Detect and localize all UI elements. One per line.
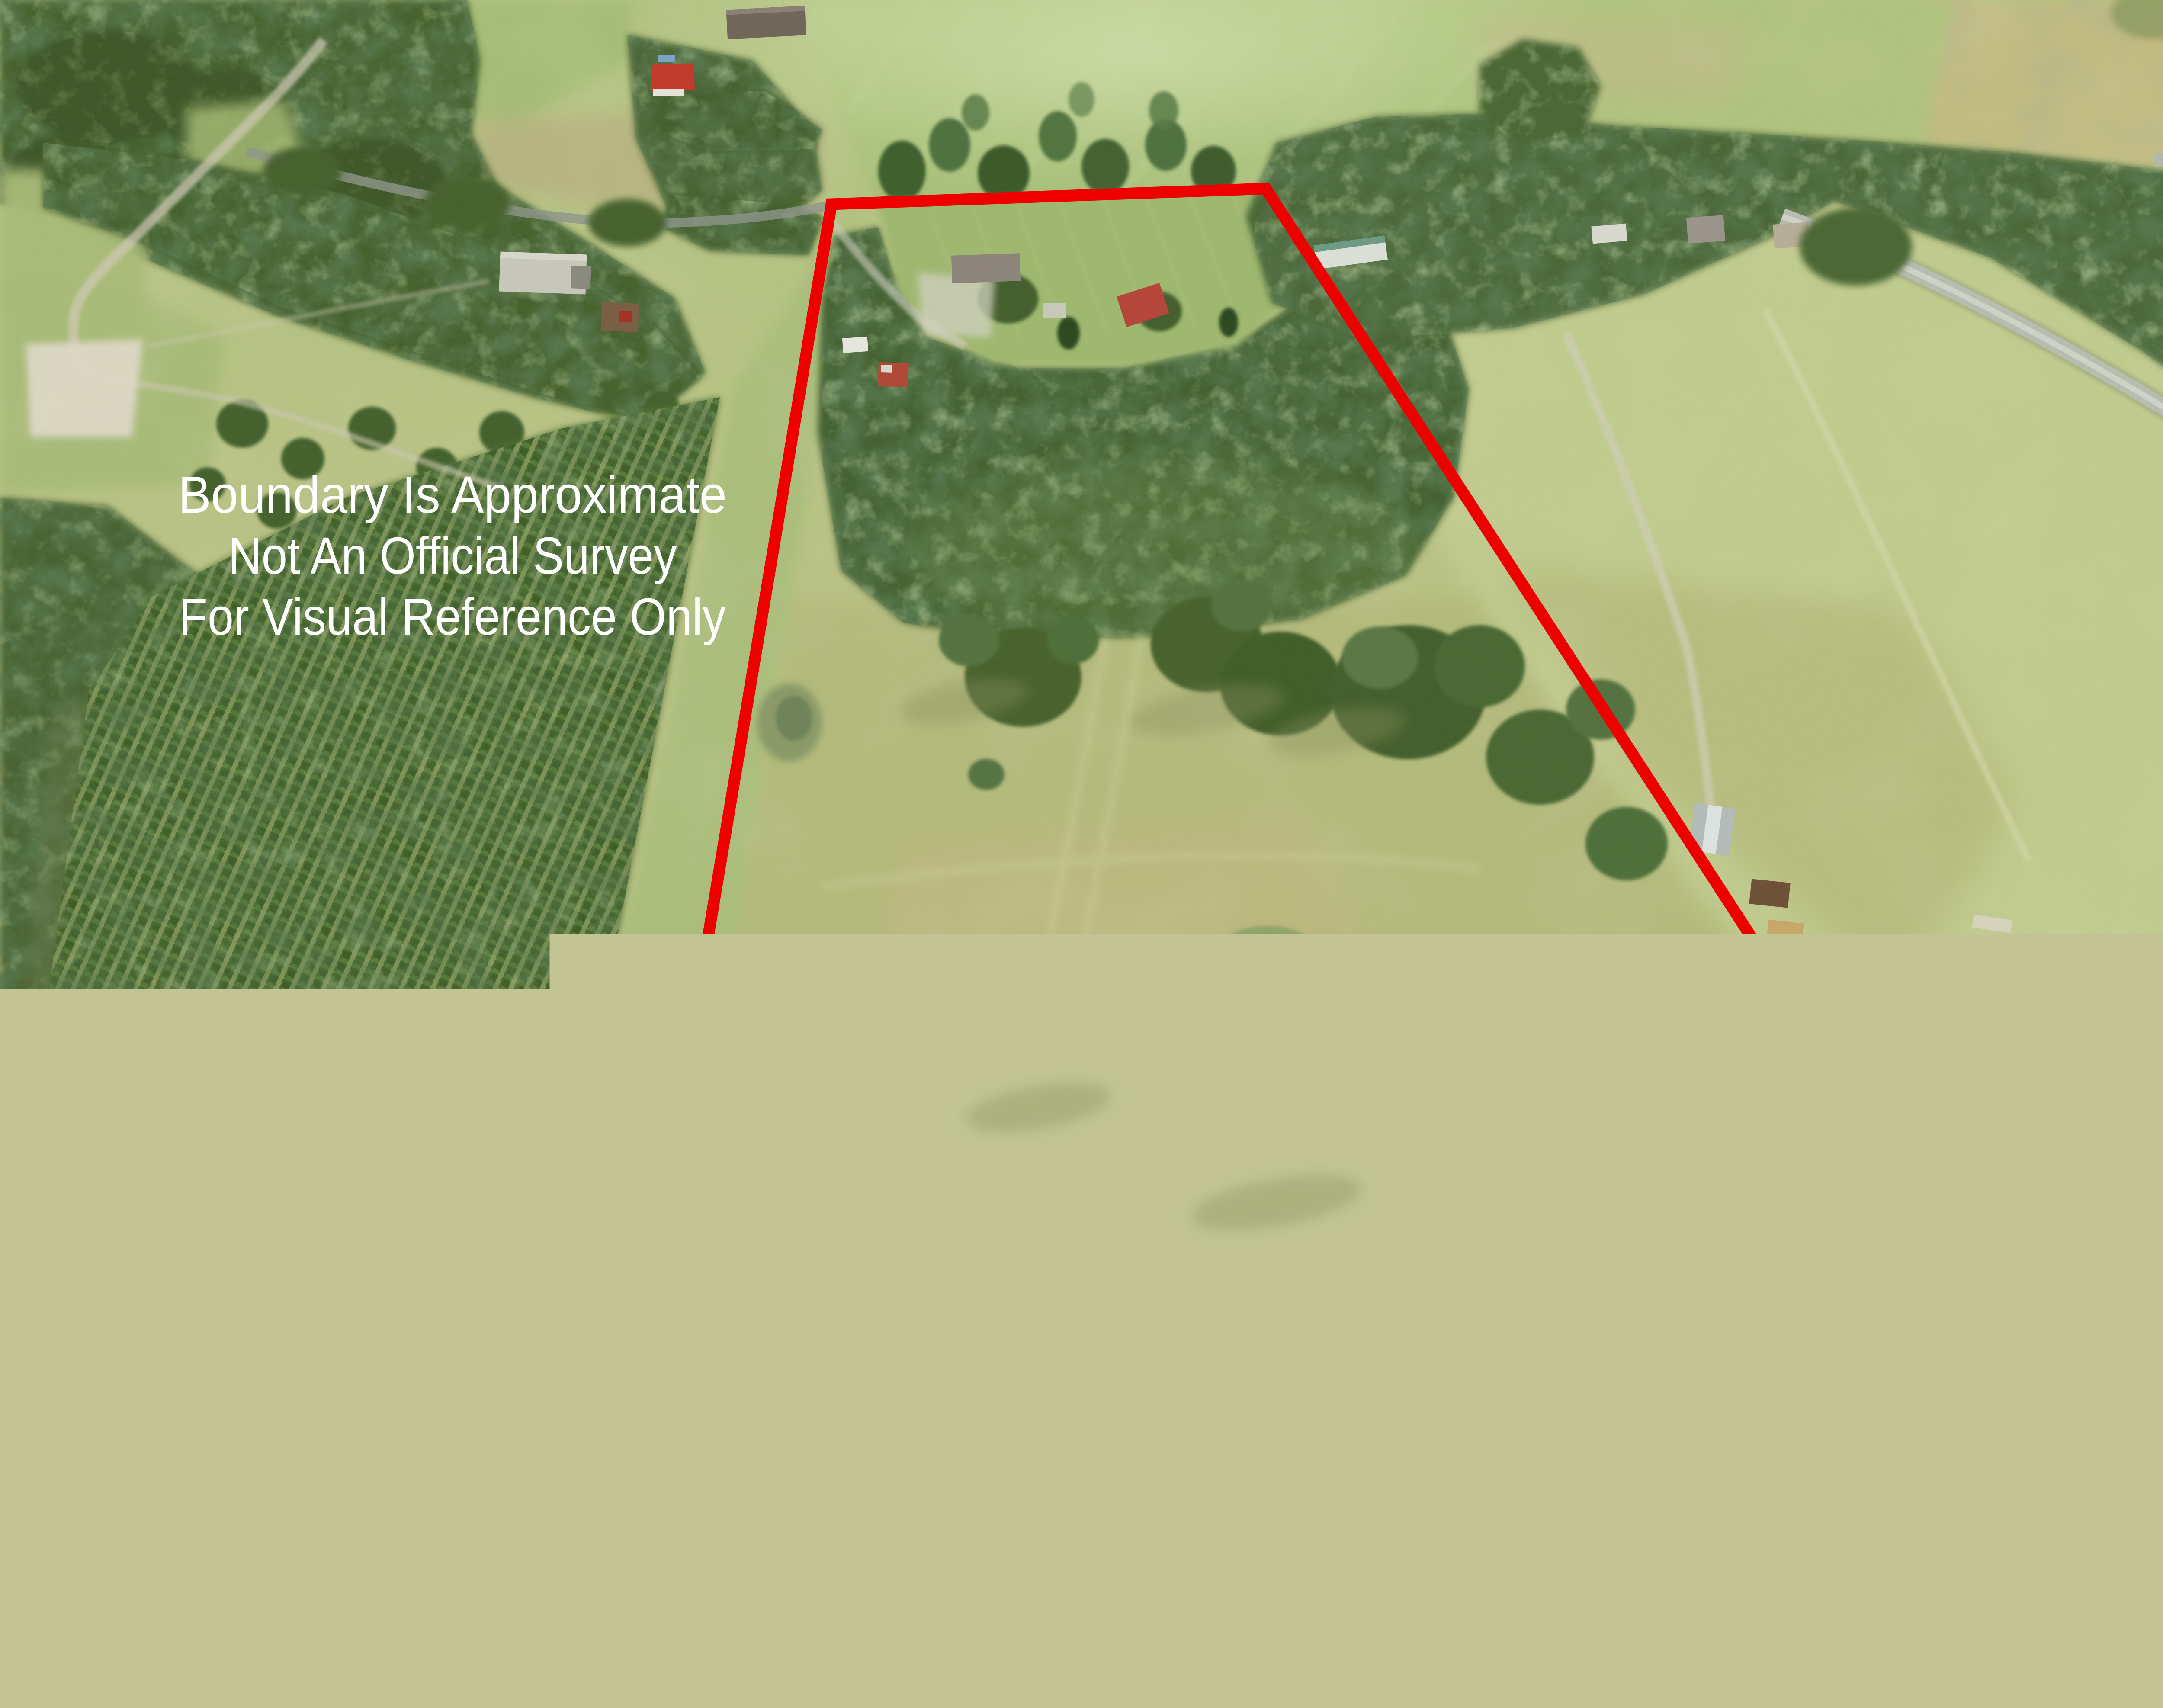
svg-text:Not An Official Survey: Not An Official Survey xyxy=(228,526,677,585)
svg-text:Boundary Is Approximate: Boundary Is Approximate xyxy=(178,465,727,524)
svg-text:For Visual Reference Only: For Visual Reference Only xyxy=(179,587,726,646)
